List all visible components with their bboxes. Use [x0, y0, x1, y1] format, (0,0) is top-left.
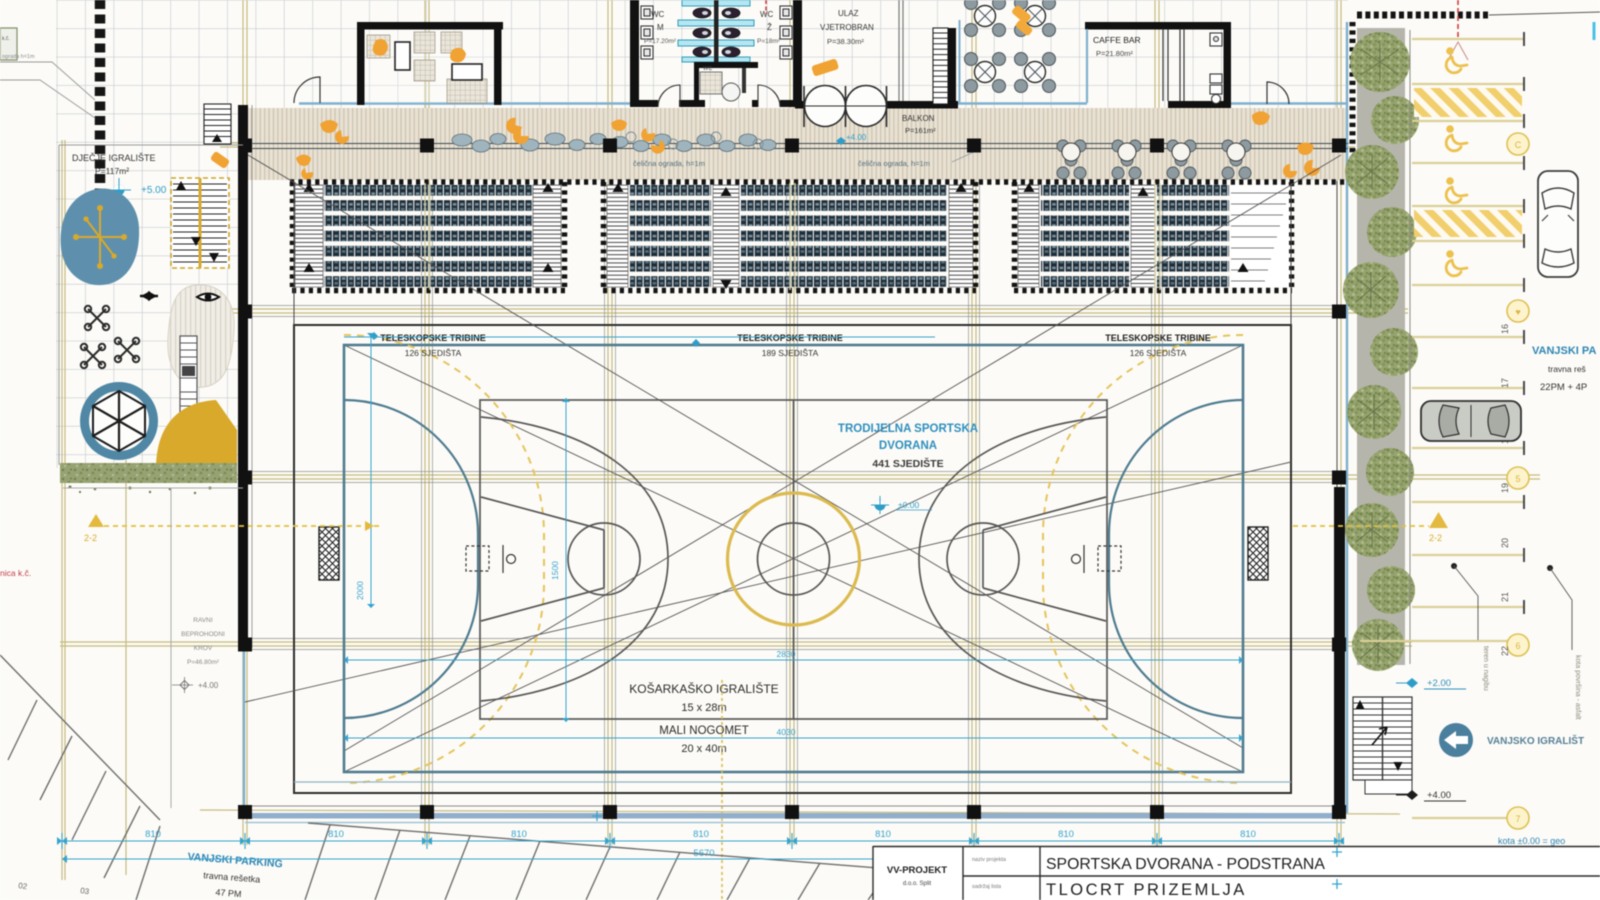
svg-text:DJEČJE IGRALIŠTE: DJEČJE IGRALIŠTE	[72, 153, 156, 163]
svg-text:03: 03	[80, 886, 91, 896]
svg-text:CAFFE BAR: CAFFE BAR	[1093, 35, 1141, 45]
svg-text:02: 02	[18, 881, 29, 891]
svg-text:TELESKOPSKE TRIBINE: TELESKOPSKE TRIBINE	[1105, 333, 1211, 343]
svg-text:21: 21	[1500, 592, 1510, 602]
svg-text:TLOCRT PRIZEMLJA: TLOCRT PRIZEMLJA	[1046, 881, 1247, 899]
svg-text:2-2: 2-2	[84, 533, 97, 543]
svg-text:Ž: Ž	[767, 23, 772, 32]
svg-text:47 PM: 47 PM	[215, 887, 242, 899]
svg-text:+4.00: +4.00	[198, 681, 219, 690]
svg-text:P=21.80m²: P=21.80m²	[1096, 49, 1133, 58]
svg-text:SPORTSKA DVORANA - PODSTRANA: SPORTSKA DVORANA - PODSTRANA	[1046, 856, 1325, 873]
svg-text:7: 7	[1515, 814, 1520, 824]
svg-text:P=18m²: P=18m²	[757, 38, 781, 45]
svg-text:16: 16	[1500, 324, 1510, 334]
svg-text:kota ±0.00 = geo: kota ±0.00 = geo	[1498, 836, 1565, 846]
svg-text:kota površina - asfalt: kota površina - asfalt	[1574, 655, 1581, 720]
svg-text:P=117m²: P=117m²	[95, 166, 129, 176]
svg-text:M: M	[657, 23, 664, 32]
svg-text:+2.00: +2.00	[1427, 678, 1451, 689]
svg-text:810: 810	[145, 829, 161, 840]
svg-text:P=38.30m²: P=38.30m²	[827, 37, 864, 46]
svg-text:VANJSKO IGRALIŠT: VANJSKO IGRALIŠT	[1487, 734, 1584, 747]
svg-text:126 SJEDIŠTA: 126 SJEDIŠTA	[1130, 348, 1187, 358]
svg-text:5: 5	[1515, 474, 1520, 484]
svg-text:♥: ♥	[1515, 307, 1520, 317]
svg-text:+4.00: +4.00	[846, 133, 867, 142]
svg-text:čelična ograda, h=1m: čelična ograda, h=1m	[633, 159, 705, 168]
svg-text:naziv projekta: naziv projekta	[972, 857, 1007, 863]
svg-text:d.o.o. Split: d.o.o. Split	[903, 881, 932, 887]
svg-text:20: 20	[1500, 538, 1510, 548]
svg-text:TELESKOPSKE TRIBINE: TELESKOPSKE TRIBINE	[380, 333, 486, 343]
svg-text:ULAZ: ULAZ	[838, 9, 859, 18]
svg-text:5670: 5670	[693, 848, 714, 859]
svg-text:MALI NOGOMET: MALI NOGOMET	[659, 725, 748, 737]
svg-text:810: 810	[1058, 829, 1074, 840]
svg-text:ograda h=1m: ograda h=1m	[2, 54, 35, 60]
svg-text:KOŠARKAŠKO IGRALIŠTE: KOŠARKAŠKO IGRALIŠTE	[629, 681, 778, 696]
svg-text:sadržaj lista: sadržaj lista	[972, 884, 1002, 890]
svg-text:VV-PROJEKT: VV-PROJEKT	[887, 865, 947, 876]
svg-text:15 x 28m: 15 x 28m	[681, 702, 726, 714]
svg-text:TRODIJELNA SPORTSKA: TRODIJELNA SPORTSKA	[838, 423, 978, 435]
svg-text:P=17.20m²: P=17.20m²	[644, 38, 677, 45]
svg-text:TELESKOPSKE TRIBINE: TELESKOPSKE TRIBINE	[737, 333, 843, 343]
svg-text:KROV: KROV	[194, 645, 213, 652]
svg-text:BALKON: BALKON	[902, 114, 935, 123]
svg-text:6: 6	[1515, 641, 1520, 651]
svg-text:+4.00: +4.00	[1427, 790, 1451, 801]
svg-text:2830: 2830	[777, 649, 796, 659]
svg-text:810: 810	[511, 829, 527, 840]
svg-text:22: 22	[1500, 646, 1510, 656]
svg-text:±0.00: ±0.00	[898, 500, 919, 510]
svg-text:2-2: 2-2	[1429, 533, 1442, 543]
svg-text:WC: WC	[760, 10, 774, 19]
svg-text:WC: WC	[651, 10, 665, 19]
svg-text:DVORANA: DVORANA	[879, 440, 937, 452]
svg-text:travna reš: travna reš	[1548, 364, 1586, 374]
svg-text:RAVNI: RAVNI	[193, 617, 213, 624]
svg-text:k.č.: k.č.	[2, 36, 10, 42]
svg-text:C: C	[1515, 140, 1522, 150]
svg-text:2000: 2000	[355, 581, 365, 600]
svg-text:4030: 4030	[777, 727, 796, 737]
svg-text:17: 17	[1500, 378, 1510, 388]
svg-text:810: 810	[875, 829, 891, 840]
svg-text:19: 19	[1500, 483, 1510, 493]
svg-text:čelična ograda, h=1m: čelična ograda, h=1m	[858, 159, 930, 168]
svg-text:+5.00: +5.00	[141, 185, 167, 196]
svg-text:WC: WC	[703, 66, 712, 72]
svg-text:P=46.80m²: P=46.80m²	[187, 659, 220, 666]
svg-text:126 SJEDIŠTA: 126 SJEDIŠTA	[405, 348, 462, 358]
svg-text:nica k.č.: nica k.č.	[0, 568, 31, 578]
svg-text:810: 810	[693, 829, 709, 840]
svg-text:22PM + 4P: 22PM + 4P	[1540, 382, 1587, 393]
svg-text:20 x 40m: 20 x 40m	[681, 743, 726, 755]
svg-text:810: 810	[1240, 829, 1256, 840]
svg-text:BEPROHODNI: BEPROHODNI	[181, 631, 225, 638]
svg-text:189 SJEDIŠTA: 189 SJEDIŠTA	[762, 348, 819, 358]
svg-text:teren u nagibu: teren u nagibu	[1482, 646, 1489, 691]
svg-text:441 SJEDIŠTE: 441 SJEDIŠTE	[872, 457, 943, 470]
svg-text:810: 810	[328, 829, 344, 840]
svg-text:P=161m²: P=161m²	[905, 126, 936, 135]
svg-text:VANJSKI PA: VANJSKI PA	[1532, 345, 1596, 357]
svg-text:VJETROBRAN: VJETROBRAN	[820, 23, 874, 32]
svg-text:1500: 1500	[550, 561, 560, 580]
